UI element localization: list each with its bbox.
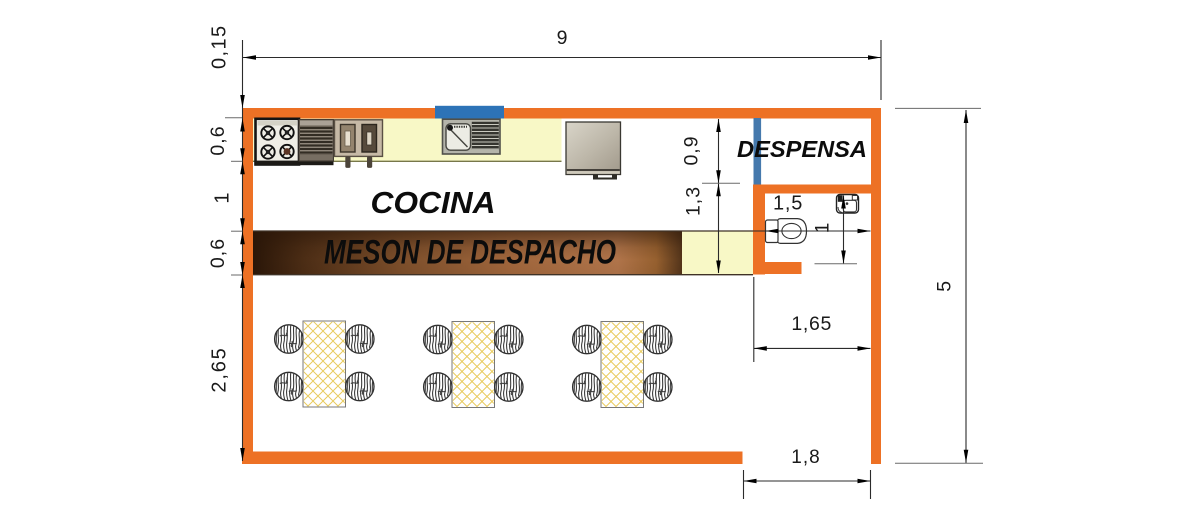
svg-text:0,15: 0,15 <box>209 24 231 69</box>
svg-text:MESON DE DESPACHO: MESON DE DESPACHO <box>324 234 616 272</box>
svg-text:2,65: 2,65 <box>209 346 231 392</box>
svg-text:1,5: 1,5 <box>773 193 803 215</box>
svg-text:0,6: 0,6 <box>207 238 229 268</box>
svg-text:1: 1 <box>212 192 234 203</box>
svg-text:1: 1 <box>812 223 833 234</box>
svg-text:1,8: 1,8 <box>791 447 820 468</box>
svg-text:9: 9 <box>557 27 568 49</box>
svg-text:DESPENSA: DESPENSA <box>737 136 867 162</box>
svg-text:COCINA: COCINA <box>371 185 496 220</box>
svg-text:1,65: 1,65 <box>791 313 832 335</box>
svg-text:5: 5 <box>933 281 955 292</box>
svg-text:0,6: 0,6 <box>207 125 229 155</box>
svg-text:1,3: 1,3 <box>682 186 704 216</box>
svg-text:0,9: 0,9 <box>681 135 703 165</box>
